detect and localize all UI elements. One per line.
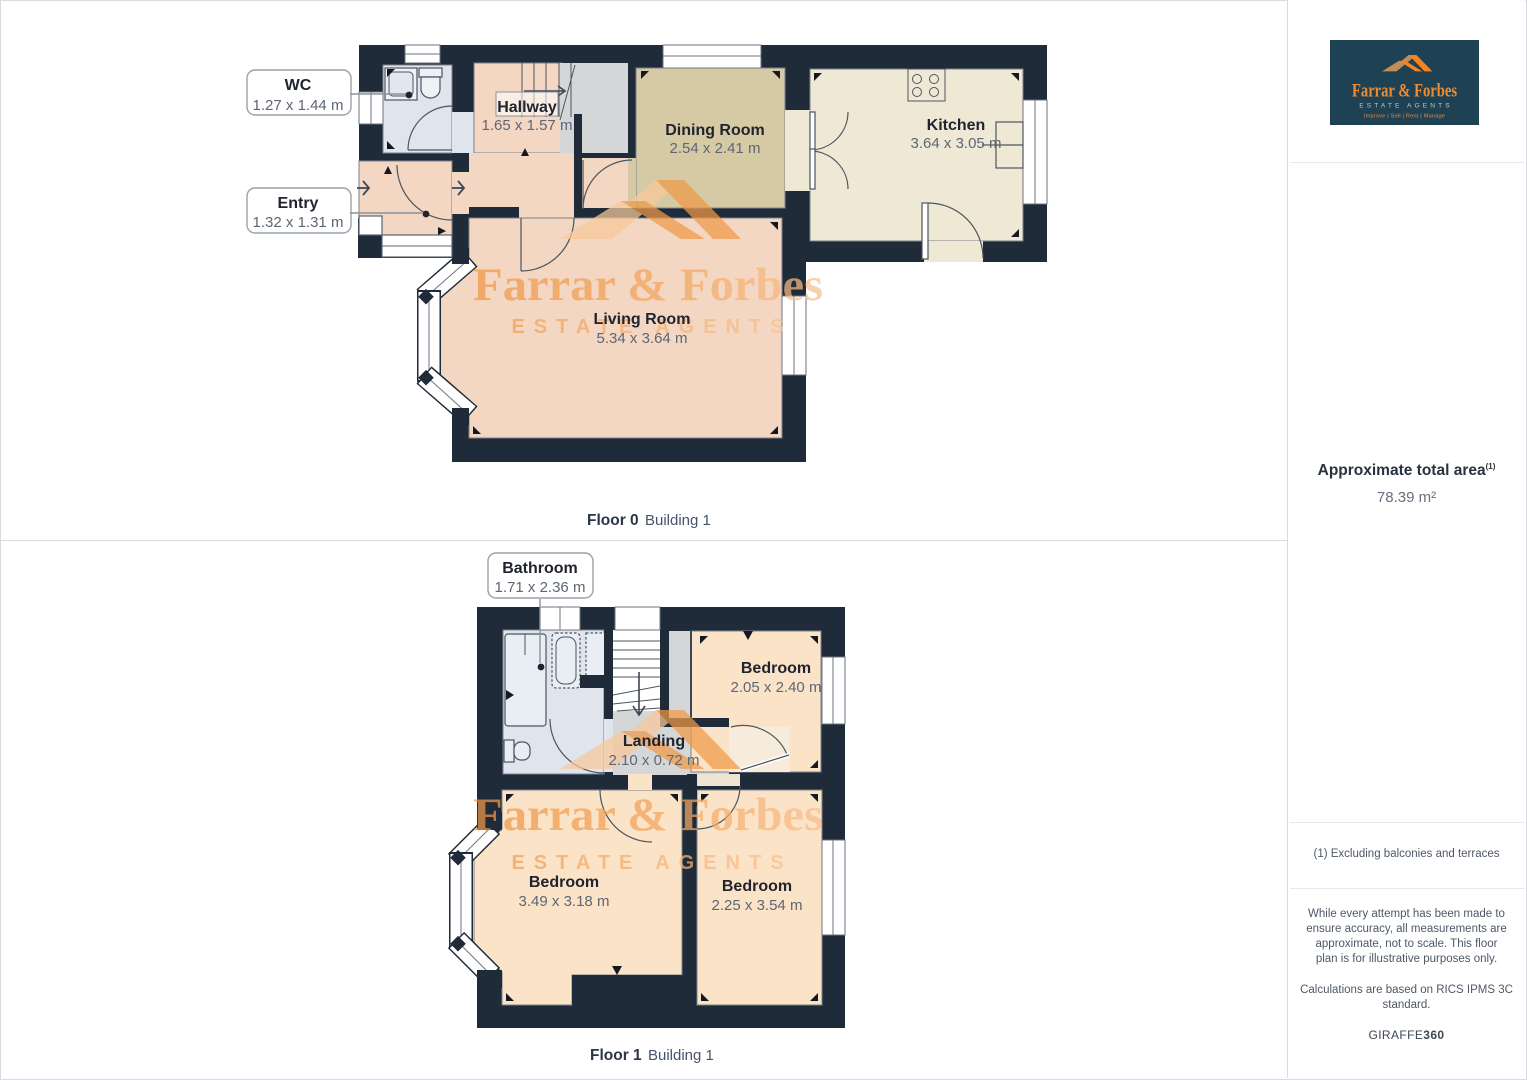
svg-text:Bathroom: Bathroom [502,560,578,577]
svg-text:Farrar & Forbes: Farrar & Forbes [1352,81,1457,102]
svg-text:3.49 x 3.18 m: 3.49 x 3.18 m [519,893,610,910]
svg-text:3.64 x 3.05 m: 3.64 x 3.05 m [911,135,1002,152]
svg-text:Hallway: Hallway [497,99,557,116]
svg-text:5.34 x 3.64 m: 5.34 x 3.64 m [597,330,688,347]
svg-text:Floor 0: Floor 0 [587,512,639,529]
svg-text:Bedroom: Bedroom [529,874,599,891]
svg-text:ESTATE AGENTS: ESTATE AGENTS [511,852,792,874]
svg-text:1.65 x 1.57 m: 1.65 x 1.57 m [482,117,573,134]
svg-text:1.27 x 1.44 m: 1.27 x 1.44 m [253,97,344,114]
svg-text:Entry: Entry [278,195,319,212]
svg-text:Bedroom: Bedroom [741,660,811,677]
svg-text:Living Room: Living Room [594,311,691,328]
svg-text:2.25 x 3.54 m: 2.25 x 3.54 m [712,897,803,914]
svg-text:Improve | Sell | Rent | Manage: Improve | Sell | Rent | Manage [1364,114,1445,120]
svg-text:Kitchen: Kitchen [927,117,986,134]
svg-text:Landing: Landing [623,733,685,750]
svg-text:Bedroom: Bedroom [722,878,792,895]
svg-text:ESTATE AGENTS: ESTATE AGENTS [1359,103,1453,110]
svg-text:2.54 x 2.41 m: 2.54 x 2.41 m [670,140,761,157]
svg-text:Floor 1: Floor 1 [590,1047,642,1064]
svg-text:Farrar & Forbes: Farrar & Forbes [473,259,823,311]
svg-text:Building 1: Building 1 [645,512,711,529]
svg-text:1.71 x 2.36 m: 1.71 x 2.36 m [495,579,586,596]
svg-text:WC: WC [285,77,312,94]
svg-text:Dining Room: Dining Room [665,122,765,139]
svg-text:Building 1: Building 1 [648,1047,714,1064]
svg-text:2.10 x 0.72 m: 2.10 x 0.72 m [609,752,700,769]
svg-text:Farrar & Forbes: Farrar & Forbes [473,789,823,841]
svg-text:2.05 x 2.40 m: 2.05 x 2.40 m [731,679,822,696]
svg-text:1.32 x 1.31 m: 1.32 x 1.31 m [253,214,344,231]
